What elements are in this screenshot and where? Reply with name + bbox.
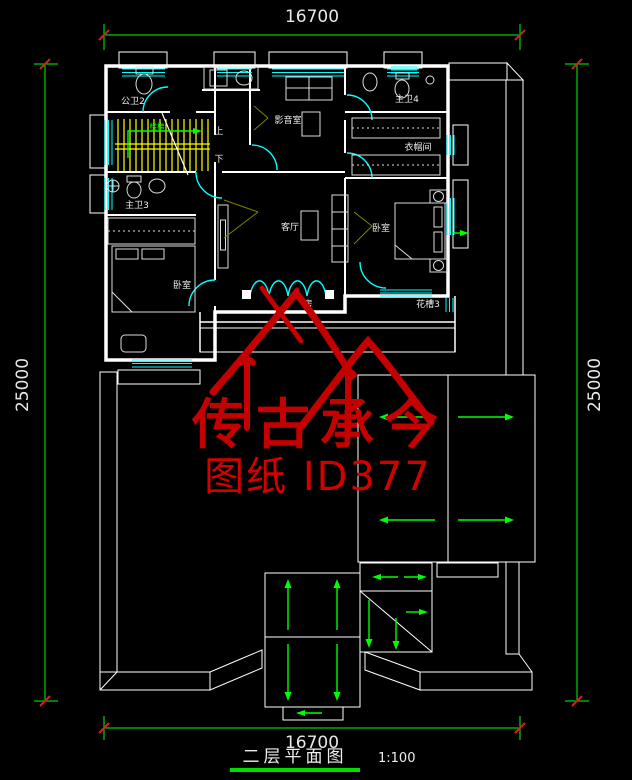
label-bath3: 主卫3 [125,199,149,211]
folding-door [242,281,334,299]
label-bath4: 主卫4 [395,93,419,105]
label-bed-left: 卧室 [173,279,191,291]
cabinet-av [286,77,332,100]
label-av-room: 影音室 [274,114,301,126]
bed-right [395,190,447,272]
window-top-1 [122,69,165,76]
label-bed-right: 卧室 [372,222,390,234]
door-bath3 [196,172,222,198]
sink-bath4 [363,73,377,91]
label-cloakroom: 衣帽间 [404,141,431,153]
watermark-cross-stroke [262,288,301,341]
door-bed-left [189,280,215,306]
wardrobe-left [108,218,195,244]
drawing-title: 二层平面图 [243,747,348,767]
dimension-right: 25000 [565,59,605,706]
stair-up-label: 上 [214,126,223,137]
perimeter-roof-strips [100,63,532,690]
watermark-brand: 传古承今 [191,392,448,456]
stool-bottom-left [121,335,146,352]
stepped-roof-transition [360,563,498,652]
title-block: 二层平面图 1:100 [230,747,415,772]
dim-top-value: 16700 [285,7,339,27]
window-right-3 [446,298,453,312]
doors [143,87,386,306]
drain-bath4 [426,76,434,84]
door-bath4 [347,95,372,120]
dim-right-value: 25000 [585,358,605,412]
label-planter3: 花槽3 [416,298,440,310]
label-bath2: 公卫2 [121,96,145,107]
floorplan-drawing: 16700 16700 25000 25000 [0,0,632,780]
watermark: 传古承今 图纸 ID377 [191,288,448,500]
label-living: 客厅 [281,221,299,233]
cad-canvas: 16700 16700 25000 25000 [0,0,632,780]
dormer-roof-panel [265,573,360,720]
watermark-id: 图纸 ID377 [204,454,432,500]
stair-down-label: 下 [214,155,223,165]
dim-left-value: 25000 [13,358,33,412]
title-underline [230,768,360,772]
window-top-3 [272,69,344,76]
drawing-scale: 1:100 [378,751,415,766]
door-bed-right [360,262,386,288]
door-bath2 [143,87,168,112]
fixtures-bath3 [107,176,165,198]
room-labels: 公卫2 影音室 主卫4 衣帽间 客厅 卧室 主卫3 卧室 花槽3 房 [121,93,440,310]
door-av-room [252,145,277,170]
staircase: 楼梯 上 下 [115,113,224,175]
coffee-table [301,211,318,240]
stair-label: 楼梯 [150,121,165,131]
dimension-top: 16700 [99,7,525,50]
bed-left [112,246,195,312]
toilet-bath2 [136,67,153,94]
dimension-left: 25000 [13,59,58,706]
dormer-flow-arrows [285,579,341,701]
table-av [302,112,320,136]
